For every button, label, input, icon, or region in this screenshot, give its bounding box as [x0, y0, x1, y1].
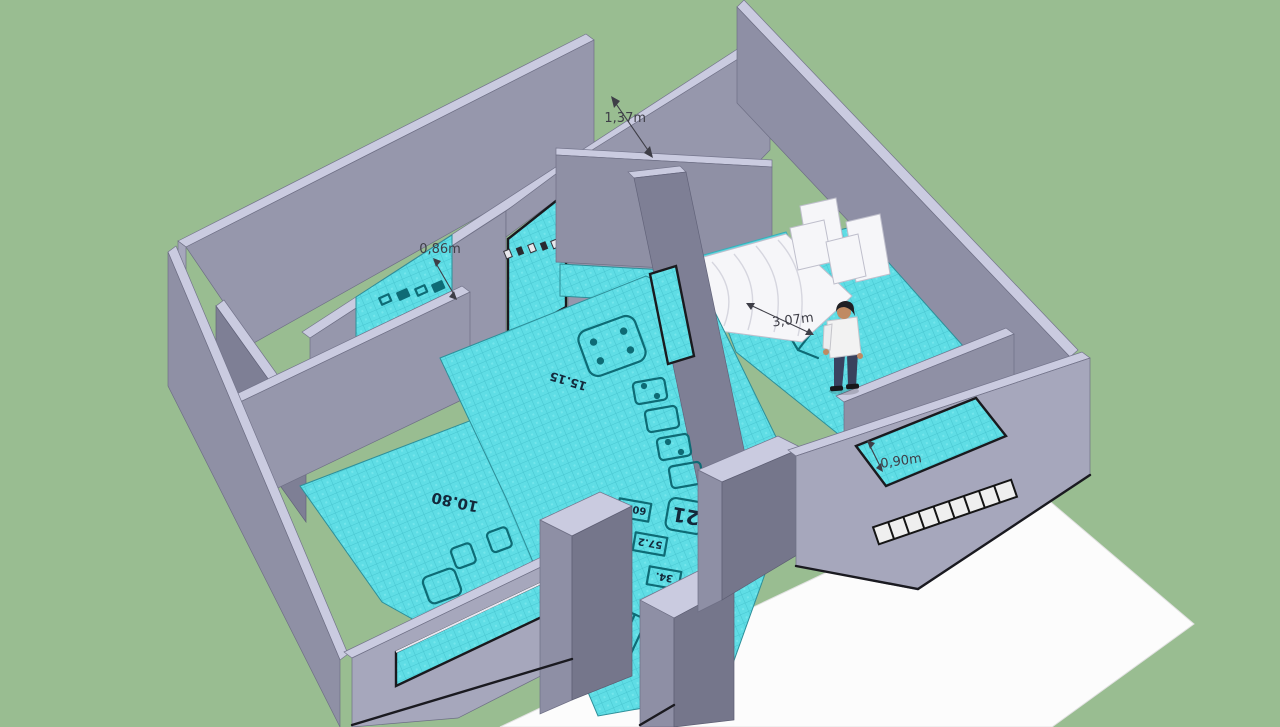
pillow [790, 220, 832, 270]
sketchup-3d-viewport[interactable]: 10.80 [0, 0, 1280, 727]
svg-text:1,37m: 1,37m [604, 111, 646, 126]
person-arm [823, 324, 832, 350]
person-shoe [846, 384, 859, 390]
person-shirt [827, 317, 861, 358]
wall-pillar [540, 492, 632, 714]
person-shoe [830, 386, 843, 392]
svg-text:21: 21 [670, 502, 702, 530]
person-hand [823, 349, 829, 355]
model-scene[interactable]: 10.80 [0, 0, 1280, 727]
svg-text:0,86m: 0,86m [419, 242, 461, 257]
person-hand [857, 353, 863, 359]
